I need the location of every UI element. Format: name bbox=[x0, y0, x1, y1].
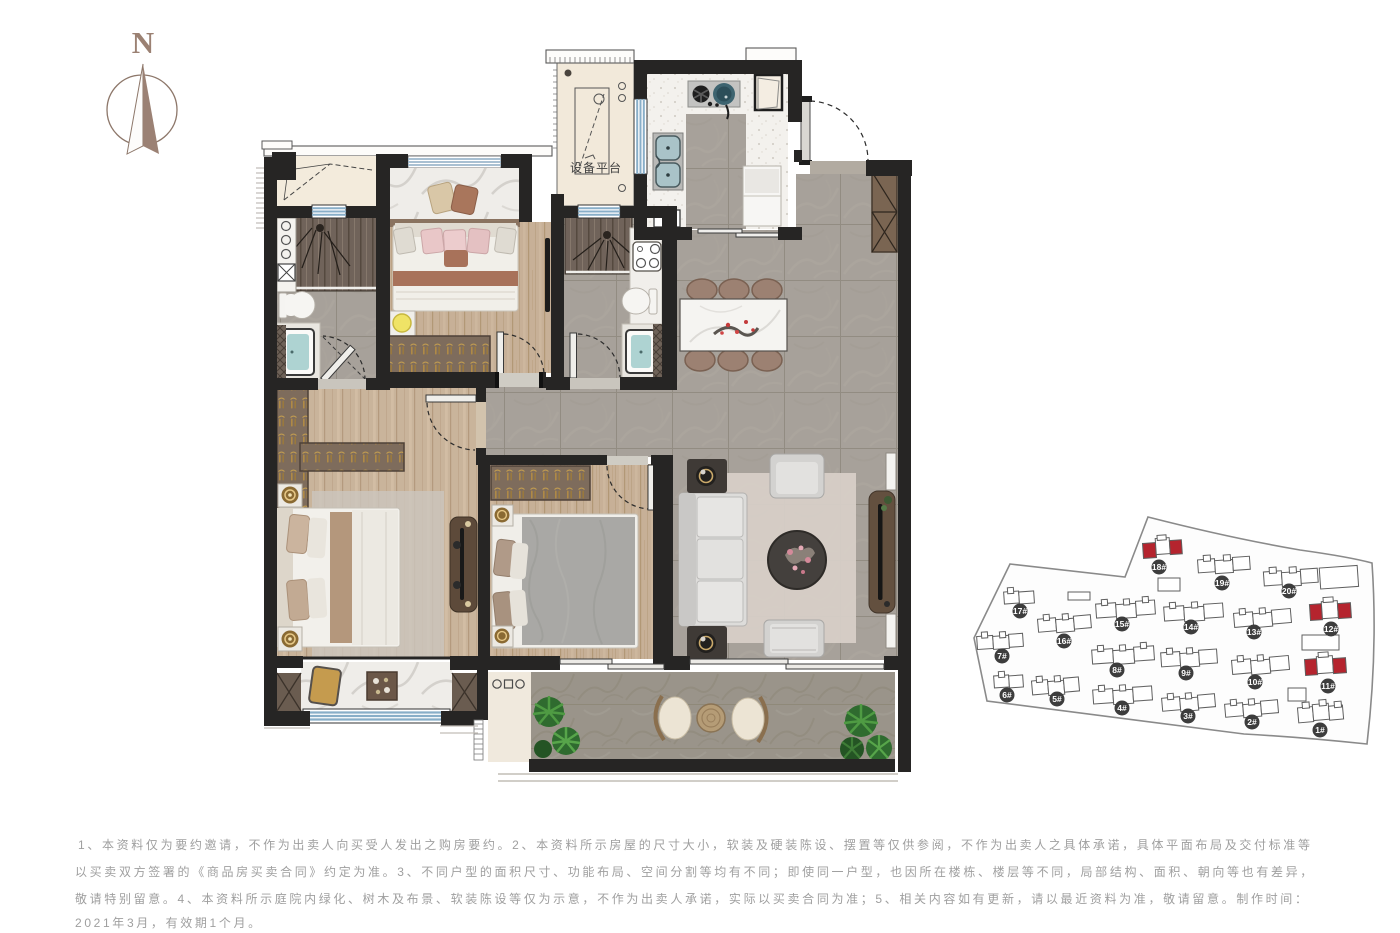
svg-text:12#: 12# bbox=[1324, 624, 1338, 634]
svg-text:1、本资料仅为要约邀请，不作为出卖人向买受人发出之购房要约。: 1、本资料仅为要约邀请，不作为出卖人向买受人发出之购房要约。2、本资料所示房屋的… bbox=[78, 837, 1313, 852]
svg-text:11#: 11# bbox=[1321, 681, 1335, 691]
svg-text:18#: 18# bbox=[1152, 562, 1166, 572]
svg-text:2#: 2# bbox=[1247, 717, 1257, 727]
svg-text:7#: 7# bbox=[997, 651, 1007, 661]
svg-text:19#: 19# bbox=[1215, 578, 1229, 588]
svg-text:5#: 5# bbox=[1052, 694, 1062, 704]
svg-text:N: N bbox=[132, 25, 154, 60]
svg-text:4#: 4# bbox=[1117, 703, 1127, 713]
svg-text:敬请特别留意。4、本资料所示庭院内绿化、树木及布景、软装陈设: 敬请特别留意。4、本资料所示庭院内绿化、树木及布景、软装陈设等仅为示意，不作为出… bbox=[75, 891, 1310, 906]
svg-text:17#: 17# bbox=[1013, 606, 1027, 616]
svg-text:16#: 16# bbox=[1057, 636, 1071, 646]
svg-text:6#: 6# bbox=[1002, 690, 1012, 700]
svg-text:20#: 20# bbox=[1282, 586, 1296, 596]
svg-text:14#: 14# bbox=[1184, 622, 1198, 632]
svg-text:8#: 8# bbox=[1112, 665, 1122, 675]
svg-text:3#: 3# bbox=[1183, 711, 1193, 721]
svg-text:2021年3月，有效期1个月。: 2021年3月，有效期1个月。 bbox=[75, 915, 263, 930]
svg-text:10#: 10# bbox=[1248, 677, 1262, 687]
svg-text:设备平台: 设备平台 bbox=[570, 160, 622, 175]
svg-text:13#: 13# bbox=[1247, 627, 1261, 637]
svg-text:15#: 15# bbox=[1115, 619, 1129, 629]
svg-text:9#: 9# bbox=[1181, 668, 1191, 678]
svg-text:1#: 1# bbox=[1315, 725, 1325, 735]
svg-text:以买卖双方签署的《商品房买卖合同》约定为准。3、不同户型的面: 以买卖双方签署的《商品房买卖合同》约定为准。3、不同户型的面积尺寸、功能布局、空… bbox=[75, 864, 1315, 879]
